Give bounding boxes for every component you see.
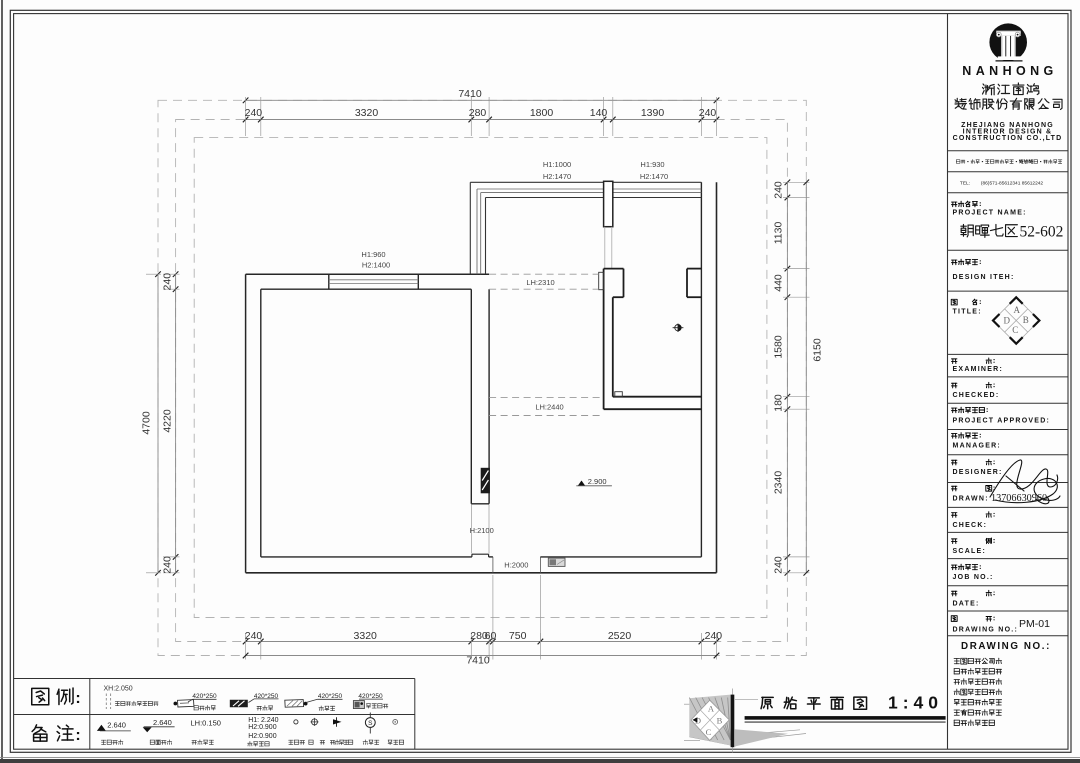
svg-text:750: 750: [509, 630, 527, 642]
svg-text:4220: 4220: [162, 409, 174, 433]
svg-text:MANAGER:: MANAGER:: [953, 443, 1002, 450]
svg-text::: :: [75, 690, 80, 707]
svg-text:240: 240: [699, 107, 717, 119]
svg-text:H:2100: H:2100: [470, 526, 494, 535]
svg-text:7410: 7410: [466, 655, 490, 667]
svg-text:TEL:: TEL:: [960, 180, 970, 186]
svg-text:1130: 1130: [773, 222, 785, 245]
svg-text:JOB NO.:: JOB NO.:: [953, 574, 994, 581]
svg-text:DRAWING NO.:: DRAWING NO.:: [953, 626, 1019, 633]
svg-text:PROJECT NAME:: PROJECT NAME:: [953, 210, 1027, 217]
svg-text:2520: 2520: [608, 630, 632, 642]
svg-text:D: D: [1003, 316, 1010, 326]
svg-text:H:2000: H:2000: [504, 560, 528, 569]
svg-text:3320: 3320: [354, 630, 378, 642]
svg-text:240: 240: [245, 107, 263, 119]
svg-text:3320: 3320: [355, 107, 379, 119]
svg-text:H1:930: H1:930: [640, 160, 664, 169]
svg-text:PROJECT APPROVED:: PROJECT APPROVED:: [953, 417, 1051, 424]
svg-text:4700: 4700: [141, 411, 153, 435]
svg-text:H2:1400: H2:1400: [362, 261, 390, 270]
svg-text:CHECKED:: CHECKED:: [953, 392, 1000, 399]
svg-text:240: 240: [162, 556, 174, 574]
svg-text:DATE:: DATE:: [953, 600, 980, 607]
svg-text:2.900: 2.900: [588, 477, 607, 486]
svg-text:LH:2440: LH:2440: [535, 402, 563, 411]
svg-text:1:40: 1:40: [888, 692, 943, 712]
svg-text:1800: 1800: [530, 107, 554, 119]
svg-text:CONSTRUCTION CO.,LTD: CONSTRUCTION CO.,LTD: [953, 135, 1063, 142]
svg-text:60: 60: [485, 630, 497, 642]
svg-text:440: 440: [773, 274, 785, 292]
svg-text:6150: 6150: [812, 338, 824, 362]
svg-text:(86)571-85612341 85612242: (86)571-85612341 85612242: [981, 180, 1043, 186]
svg-text:240: 240: [773, 181, 785, 199]
svg-text:SCALE:: SCALE:: [953, 548, 987, 555]
svg-text:A: A: [1013, 305, 1020, 315]
svg-text:240: 240: [773, 556, 785, 574]
svg-text:DESIGNER:: DESIGNER:: [953, 469, 1003, 476]
svg-text:7410: 7410: [458, 88, 482, 100]
svg-text:NANHONG: NANHONG: [962, 64, 1057, 78]
svg-text:H2:1470: H2:1470: [543, 172, 571, 181]
svg-text:H1:1000: H1:1000: [543, 160, 571, 169]
svg-text:PM-01: PM-01: [1019, 618, 1050, 630]
svg-text:2.640: 2.640: [107, 721, 126, 730]
svg-text:H2:1470: H2:1470: [640, 172, 668, 181]
svg-text:1580: 1580: [773, 335, 785, 359]
svg-text:H1: 2.240: H1: 2.240: [248, 717, 278, 724]
svg-text::: :: [75, 727, 80, 744]
svg-text:XH:2.050: XH:2.050: [104, 686, 133, 693]
svg-text:DRAWN:: DRAWN:: [953, 496, 989, 503]
svg-text:C: C: [1012, 325, 1018, 335]
svg-text:2.640: 2.640: [153, 718, 172, 727]
svg-text:240: 240: [162, 273, 174, 291]
svg-text:52-602: 52-602: [1020, 223, 1064, 240]
svg-text:240: 240: [245, 630, 263, 642]
svg-text:A: A: [708, 704, 715, 714]
svg-text:LH:2310: LH:2310: [526, 278, 554, 287]
svg-text:DRAWING NO.:: DRAWING NO.:: [961, 641, 1051, 652]
svg-text:C: C: [706, 727, 712, 737]
svg-text:280: 280: [469, 107, 487, 119]
svg-text:240: 240: [705, 630, 723, 642]
svg-text:LH:0.150: LH:0.150: [191, 719, 221, 728]
svg-text:2340: 2340: [773, 471, 785, 495]
svg-text:TITLE:: TITLE:: [953, 309, 982, 316]
svg-text:B: B: [717, 716, 723, 726]
svg-text:EXAMINER:: EXAMINER:: [953, 366, 1004, 373]
svg-text:H1:960: H1:960: [361, 250, 385, 259]
svg-text:CHECK:: CHECK:: [953, 522, 988, 529]
svg-text:140: 140: [590, 107, 608, 119]
svg-text:180: 180: [773, 394, 785, 412]
svg-text:H2:0.900: H2:0.900: [248, 724, 277, 731]
svg-text:S: S: [368, 720, 373, 727]
svg-text:1390: 1390: [641, 107, 665, 119]
svg-text:H2:0.900: H2:0.900: [248, 733, 277, 740]
svg-text:B: B: [1023, 315, 1029, 325]
svg-text:DESIGN ITEH:: DESIGN ITEH:: [953, 274, 1015, 281]
